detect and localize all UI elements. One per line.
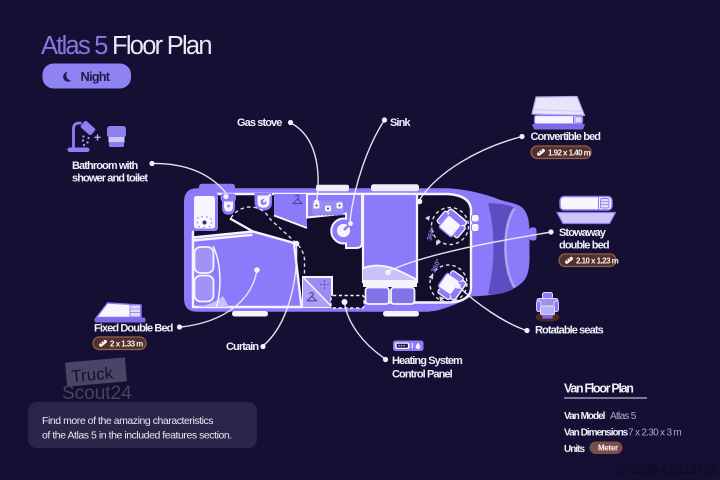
svg-text:Find more of the amazing chara: Find more of the amazing characteristics bbox=[42, 415, 213, 427]
svg-text:Gas stove: Gas stove bbox=[237, 117, 282, 129]
svg-text:Atlas 5: Atlas 5 bbox=[610, 411, 637, 422]
svg-text:Van Floor Plan: Van Floor Plan bbox=[564, 382, 633, 396]
svg-text:Units: Units bbox=[564, 444, 585, 455]
svg-text:Control Panel: Control Panel bbox=[392, 369, 453, 381]
svg-text:Bathroom with: Bathroom with bbox=[72, 160, 138, 172]
svg-text:Night: Night bbox=[81, 69, 111, 84]
svg-text:2 x 1.33 m: 2 x 1.33 m bbox=[110, 339, 143, 348]
svg-text:Van Dimensions: Van Dimensions bbox=[564, 428, 629, 439]
svg-text:Convertible bed: Convertible bed bbox=[531, 131, 601, 143]
svg-text:Fixed Double Bed: Fixed Double Bed bbox=[94, 323, 173, 335]
svg-text:Rotatable seats: Rotatable seats bbox=[535, 325, 604, 337]
svg-text:7 x 2.30 x 3 m: 7 x 2.30 x 3 m bbox=[628, 428, 681, 439]
svg-text:Scout24: Scout24 bbox=[62, 383, 132, 404]
svg-text:1.92 x 1.40 m: 1.92 x 1.40 m bbox=[548, 148, 591, 157]
svg-text:Heating System: Heating System bbox=[392, 355, 463, 367]
svg-text:of the Atlas 5 in the included: of the Atlas 5 in the included features … bbox=[42, 430, 232, 442]
svg-text:Meter: Meter bbox=[598, 444, 618, 453]
svg-text:shower and toilet: shower and toilet bbox=[72, 173, 148, 185]
svg-text:573580-26533725: 573580-26533725 bbox=[616, 463, 718, 477]
svg-text:2.10 x 1.23 m: 2.10 x 1.23 m bbox=[576, 256, 619, 265]
svg-text:Curtain: Curtain bbox=[226, 341, 259, 353]
svg-text:Sink: Sink bbox=[390, 117, 411, 129]
svg-text:Van Model: Van Model bbox=[564, 411, 606, 422]
svg-text:Atlas 5 Floor Plan: Atlas 5 Floor Plan bbox=[41, 32, 211, 60]
svg-text:Stowaway: Stowaway bbox=[559, 227, 607, 239]
svg-text:+: + bbox=[94, 131, 101, 145]
svg-text:double bed: double bed bbox=[559, 240, 609, 252]
